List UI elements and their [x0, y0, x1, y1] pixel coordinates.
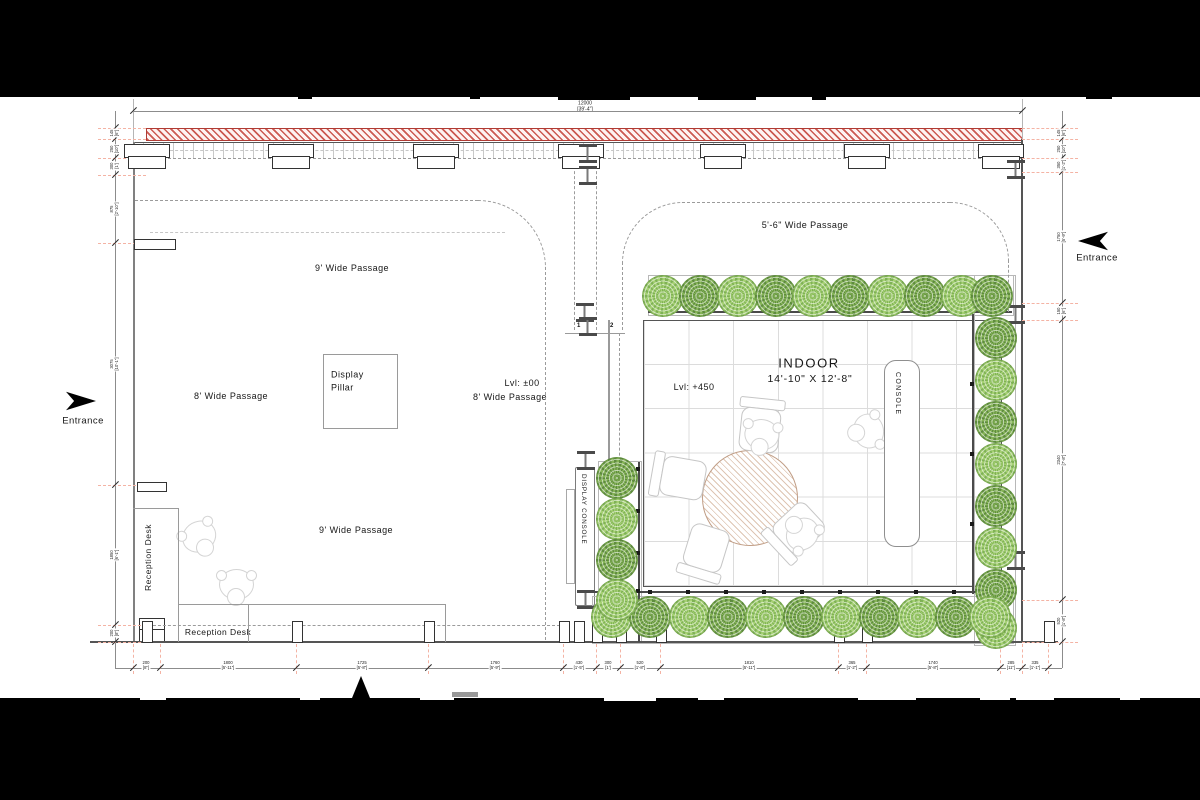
dim-extension	[620, 644, 621, 674]
passage-dash	[545, 267, 546, 640]
passage-arc	[622, 202, 683, 263]
tree-icon	[829, 275, 871, 317]
dim-extension	[98, 175, 146, 176]
dim-extension	[1022, 644, 1023, 674]
tree-icon	[969, 596, 1011, 638]
console-side-panel	[566, 489, 575, 584]
dim-extension	[838, 644, 839, 674]
desk-front-dash	[133, 625, 560, 626]
crop-noise	[858, 698, 916, 700]
tree-icon	[745, 596, 787, 638]
dim-chain	[133, 111, 1022, 112]
partition-dash	[574, 156, 575, 330]
column-marker	[579, 317, 597, 336]
dimension-label: 3075 [10'-1"]	[110, 357, 120, 372]
crop-noise	[812, 97, 826, 100]
dimension-label: 145 [6"]	[110, 129, 120, 138]
tree-icon	[867, 275, 909, 317]
tree-icon	[669, 596, 711, 638]
column-marker	[577, 590, 595, 609]
column-marker	[1007, 160, 1025, 179]
tree-icon	[783, 596, 825, 638]
desk-line	[248, 604, 249, 642]
anchor-square	[724, 590, 728, 594]
reception-desk-front-label: Reception Desk	[185, 627, 251, 637]
tree-icon	[679, 275, 721, 317]
tree-icon	[596, 498, 638, 540]
tree-icon	[904, 275, 946, 317]
column-box	[292, 621, 303, 643]
passage-label-9-top: 9' Wide Passage	[315, 263, 389, 273]
floor-plan-canvas: Entrance Entrance 9' Wide Passage 8' Wid…	[0, 0, 1200, 800]
dimension-label: 1760 [5'-9"]	[489, 661, 502, 671]
tree-icon	[975, 317, 1017, 359]
tree-icon	[821, 596, 863, 638]
dimension-label: 150 [6"]	[1057, 307, 1067, 316]
dim-extension	[98, 128, 146, 129]
dim-chain	[115, 668, 1062, 669]
level-label-indoor: Lvl: +450	[674, 382, 715, 392]
tree-icon	[975, 485, 1017, 527]
indoor-size-label: 14'-10" X 12'-8"	[768, 373, 853, 385]
tree-icon	[975, 401, 1017, 443]
column-marker	[579, 166, 597, 185]
north-arrow-icon	[352, 676, 370, 698]
top-black-band	[0, 0, 1200, 97]
dim-extension	[1022, 600, 1078, 601]
person-icon	[844, 410, 888, 452]
anchor-square	[914, 590, 918, 594]
dim-extension	[1022, 128, 1078, 129]
dimension-label: 875 [2'-10"]	[110, 202, 120, 217]
dimension-label: 520 [1'-8"]	[1057, 615, 1067, 628]
column-box	[704, 156, 742, 169]
dim-extension	[133, 644, 134, 674]
anchor-square	[648, 590, 652, 594]
niche-wall	[608, 320, 610, 463]
console	[884, 360, 920, 547]
console-label: CONSOLE	[894, 372, 901, 415]
dimension-label: 1725 [5'-8"]	[356, 661, 369, 671]
tree-icon	[596, 457, 638, 499]
desk-line	[133, 508, 178, 509]
tree-icon	[642, 275, 684, 317]
passage-dash	[135, 200, 478, 201]
passage-dash	[150, 232, 505, 233]
tree-icon	[717, 275, 759, 317]
chair-icon	[656, 454, 708, 501]
dimension-label: 300 [1']	[604, 661, 613, 671]
dimension-label: 430 [1'-5"]	[573, 661, 586, 671]
dim-extension	[660, 644, 661, 674]
dimension-label: 285 [11"]	[1006, 661, 1016, 671]
passage-label-56: 5'-6" Wide Passage	[762, 220, 849, 230]
desk-line	[178, 604, 445, 605]
person-icon	[218, 568, 254, 606]
passage-arc	[478, 200, 546, 268]
tree-icon	[975, 359, 1017, 401]
column-marker	[577, 451, 595, 470]
level-label-main: Lvl: ±00	[504, 378, 539, 388]
dimension-label: 250 [10"]	[110, 144, 120, 154]
tree-icon	[897, 596, 939, 638]
dim-extension	[1022, 303, 1078, 304]
dimension-label: 200 [8"]	[142, 661, 151, 671]
passage-arc	[950, 202, 1009, 261]
dim-chain	[115, 111, 116, 668]
indoor-title: INDOOR	[778, 356, 840, 371]
dim-extension	[1022, 158, 1078, 159]
anchor-square	[876, 590, 880, 594]
display-console-label: DISPLAY CONSOLE	[580, 474, 587, 545]
dimension-label: 1740 [5'-8"]	[927, 661, 940, 671]
desk-line	[445, 604, 446, 642]
dim-extension	[428, 644, 429, 674]
crop-noise	[698, 96, 756, 100]
dim-extension	[98, 625, 146, 626]
entrance-arrow-left-icon	[66, 391, 96, 411]
dim-extension	[98, 642, 146, 643]
anchor-square	[800, 590, 804, 594]
dim-extension	[1022, 320, 1078, 321]
tree-icon	[707, 596, 749, 638]
crop-noise	[558, 96, 630, 100]
extension	[1022, 99, 1023, 139]
column-box	[1044, 621, 1055, 643]
display-pillar-label: Display Pillar	[331, 368, 364, 393]
dimension-label: 2340 [7'-8"]	[1057, 454, 1067, 467]
crop-noise	[420, 698, 454, 700]
passage-dash	[682, 202, 950, 203]
person-icon	[741, 416, 782, 459]
anchor-square	[762, 590, 766, 594]
anchor-square	[970, 452, 974, 456]
column-box	[574, 621, 585, 643]
left-wall	[133, 142, 135, 643]
anchor-square	[838, 590, 842, 594]
tree-icon	[596, 539, 638, 581]
passage-dash	[622, 262, 623, 330]
dimension-label: 300 [1']	[110, 162, 120, 171]
column-box	[848, 156, 886, 169]
column-box	[559, 621, 570, 643]
dimension-label: 365 [1'-2"]	[846, 661, 859, 671]
extension	[133, 99, 134, 142]
hatched-wall	[146, 128, 1023, 141]
dimension-label: 1810 [5'-11"]	[742, 661, 757, 671]
dim-extension	[1048, 644, 1049, 674]
crop-noise	[604, 698, 656, 701]
dimension-label: 520 [1'-8"]	[634, 661, 647, 671]
dimension-label: 145 [6"]	[1057, 129, 1067, 138]
tree-icon	[975, 527, 1017, 569]
grid-marker-2: 2	[610, 323, 613, 329]
dimension-label: 200 [8"]	[110, 629, 120, 638]
person-icon	[175, 514, 225, 565]
tree-icon	[975, 443, 1017, 485]
dim-extension	[160, 644, 161, 674]
entrance-left-label: Entrance	[62, 416, 104, 427]
column-box	[417, 156, 455, 169]
dim-extension	[866, 644, 867, 674]
entrance-right-label: Entrance	[1076, 253, 1118, 264]
dimension-label: 1850 [6'-1"]	[110, 549, 120, 562]
column-box	[137, 482, 167, 492]
tree-icon	[596, 579, 638, 621]
anchor-square	[952, 590, 956, 594]
entrance-arrow-right-icon	[1078, 231, 1108, 251]
column-box	[142, 621, 153, 643]
crop-noise	[1016, 698, 1054, 700]
dimension-label: 1800 [5'-11"]	[221, 661, 236, 671]
crop-noise	[980, 698, 1010, 700]
tree-icon	[971, 275, 1013, 317]
dimension-label: 1750 [5'-9"]	[1057, 231, 1067, 244]
crop-noise	[452, 692, 478, 697]
column-box	[128, 156, 166, 169]
tree-icon	[859, 596, 901, 638]
dim-extension	[296, 644, 297, 674]
crop-noise	[1086, 97, 1112, 99]
tree-icon	[792, 275, 834, 317]
anchor-square	[686, 590, 690, 594]
passage-label-9-bottom: 9' Wide Passage	[319, 525, 393, 535]
crop-noise	[298, 97, 312, 99]
dim-extension	[1022, 172, 1078, 173]
dimension-label: 250 [10"]	[1057, 144, 1067, 154]
passage-label-8-left: 8' Wide Passage	[194, 391, 268, 401]
dimension-label: 335 [1'-1"]	[1029, 661, 1042, 671]
column-box	[134, 239, 176, 250]
crop-noise	[140, 698, 166, 700]
dim-extension	[1022, 139, 1078, 140]
dim-chain	[1062, 111, 1063, 668]
bottom-black-band	[0, 698, 1200, 800]
dim-extension	[98, 139, 146, 140]
crop-noise	[1120, 698, 1140, 700]
tree-icon	[755, 275, 797, 317]
crop-noise	[300, 698, 320, 700]
column-box	[272, 156, 310, 169]
anchor-square	[970, 382, 974, 386]
column-marker	[579, 144, 597, 163]
column-box	[424, 621, 435, 643]
desk-line	[178, 508, 179, 642]
crop-noise	[470, 97, 480, 99]
dim-extension	[596, 644, 597, 674]
anchor-square	[970, 522, 974, 526]
dim-extension	[563, 644, 564, 674]
dimension-label: 350 [1'-2"]	[1057, 159, 1067, 172]
crop-noise	[698, 698, 724, 700]
passage-label-8-right: 8' Wide Passage	[473, 392, 547, 402]
